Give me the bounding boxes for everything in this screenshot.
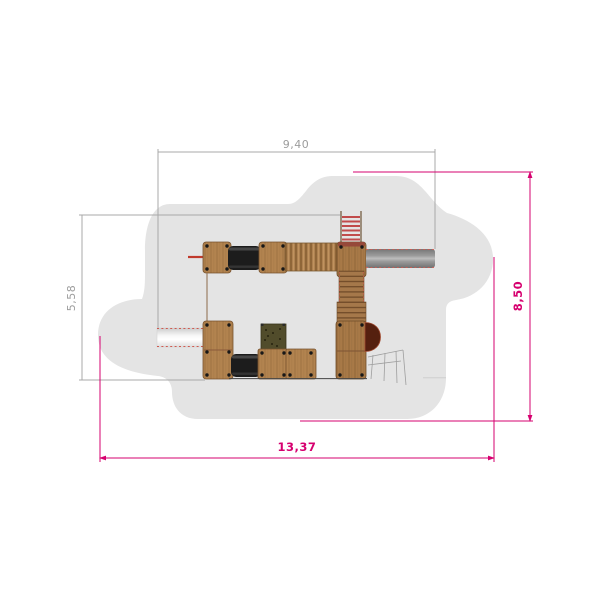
safety-zone [98,176,493,419]
platform-upper-left [203,242,231,273]
panel-post [283,324,286,327]
dim-top-label: 9,40 [283,138,310,151]
metal-slide [366,249,435,268]
climbing-panel [261,324,286,352]
platform-upper-mid [259,242,287,273]
panel-post [261,324,264,327]
crawl-tunnel-upper [228,246,261,270]
dim-right-label: 8,50 [511,281,525,311]
white-slide [157,328,205,347]
crawl-tunnel-lower [231,354,261,377]
wooden-stairs [337,271,366,322]
dim-bottom-label: 13,37 [278,440,317,454]
playground-plan-drawing: 9,40 5,58 8,50 13,37 [0,0,600,600]
ribbed-bridge [285,243,338,271]
platform-lower-mid [258,349,288,379]
platform-lower-right [286,349,316,379]
platform-tower-bottom [336,321,366,379]
dim-left-label: 5,58 [65,285,78,312]
platform-lower-left [203,321,233,379]
